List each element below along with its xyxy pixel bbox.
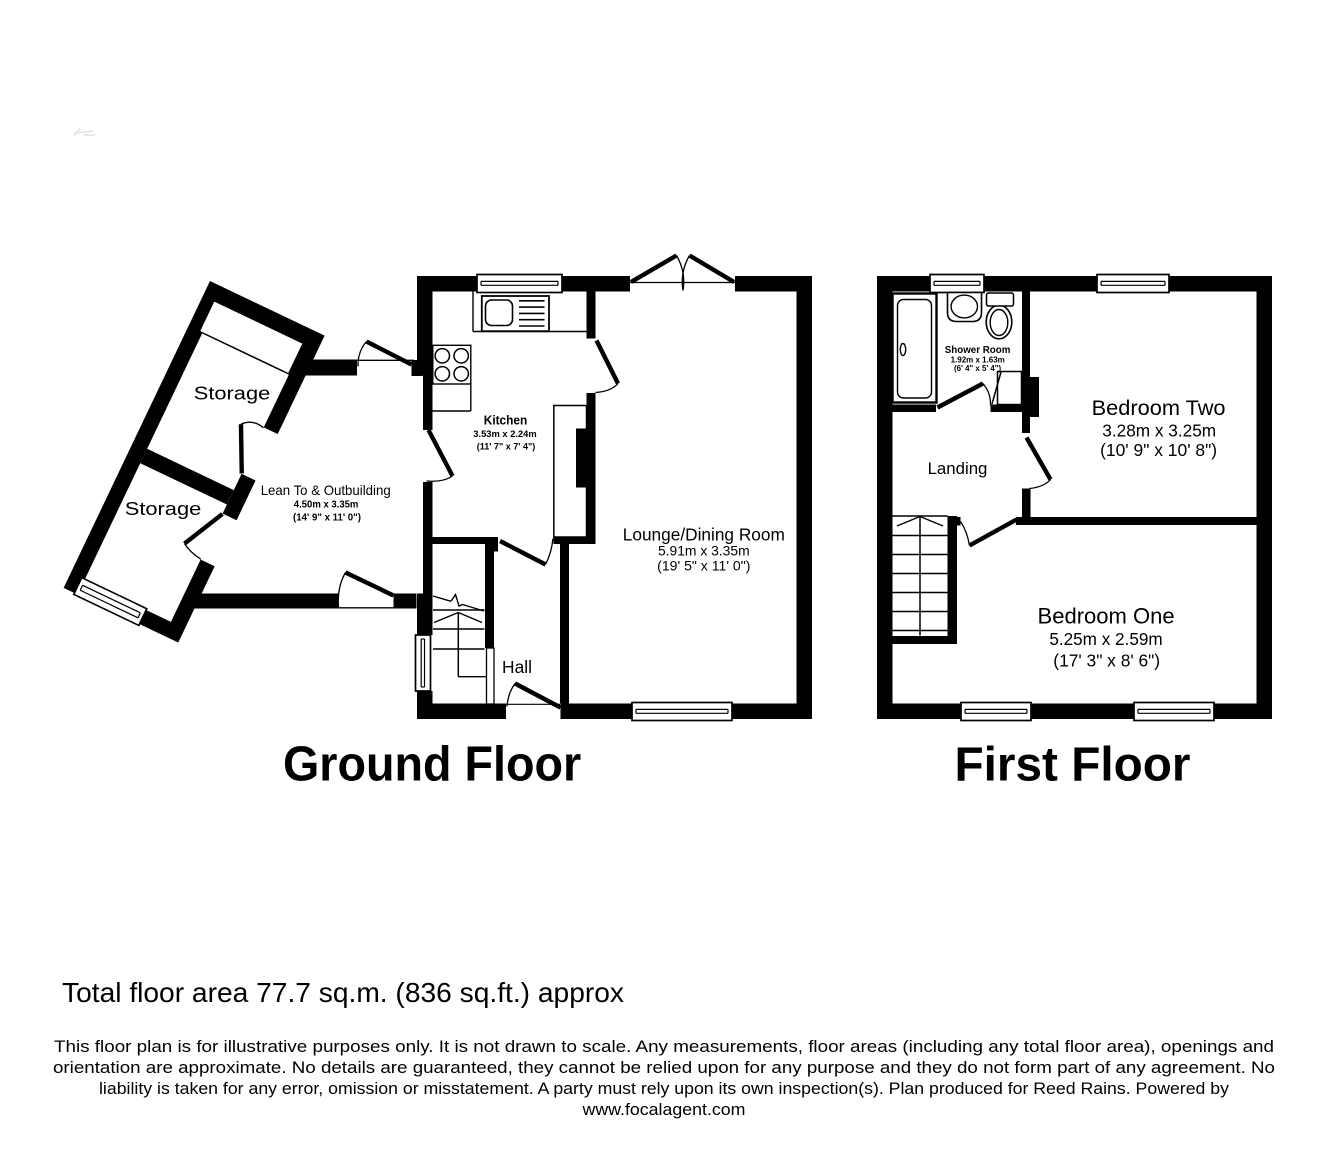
svg-text:3.53m x 2.24m: 3.53m x 2.24m bbox=[473, 428, 536, 439]
svg-text:Landing: Landing bbox=[928, 459, 988, 478]
svg-text:Kitchen: Kitchen bbox=[484, 412, 528, 427]
svg-text:(6' 4" x 5' 4"): (6' 4" x 5' 4") bbox=[954, 364, 1001, 373]
svg-text:www.focalagent.com: www.focalagent.com bbox=[581, 1101, 745, 1119]
svg-text:(14' 9" x 11' 0"): (14' 9" x 11' 0") bbox=[293, 512, 361, 523]
svg-text:Storage: Storage bbox=[194, 383, 271, 404]
svg-text:Bedroom Two: Bedroom Two bbox=[1092, 396, 1226, 420]
svg-text:Lounge/Dining Room: Lounge/Dining Room bbox=[623, 524, 785, 544]
svg-text:Total floor area 77.7 sq.m. (8: Total floor area 77.7 sq.m. (836 sq.ft.)… bbox=[62, 977, 624, 1008]
svg-text:(11' 7" x 7' 4"): (11' 7" x 7' 4") bbox=[477, 442, 536, 453]
svg-text:4.50m x 3.35m: 4.50m x 3.35m bbox=[294, 499, 359, 510]
svg-text:liability is taken for any err: liability is taken for any error, omissi… bbox=[99, 1080, 1230, 1098]
svg-text:3.28m x 3.25m: 3.28m x 3.25m bbox=[1102, 420, 1216, 440]
svg-text:Lean To & Outbuilding: Lean To & Outbuilding bbox=[261, 482, 391, 498]
svg-text:5.25m x 2.59m: 5.25m x 2.59m bbox=[1049, 630, 1162, 649]
svg-text:First Floor: First Floor bbox=[955, 738, 1191, 792]
svg-text:orientation are approximate. N: orientation are approximate. No details … bbox=[53, 1059, 1275, 1077]
svg-text:Shower Room: Shower Room bbox=[945, 345, 1011, 356]
svg-text:(19' 5" x 11' 0"): (19' 5" x 11' 0") bbox=[657, 557, 750, 573]
svg-text:Storage: Storage bbox=[125, 498, 202, 519]
svg-text:5.91m x 3.35m: 5.91m x 3.35m bbox=[658, 542, 750, 558]
svg-text:Hall: Hall bbox=[502, 657, 532, 677]
svg-text:Ground Floor: Ground Floor bbox=[283, 738, 581, 792]
svg-text:This floor plan is for illustr: This floor plan is for illustrative purp… bbox=[54, 1038, 1274, 1056]
svg-text:(17' 3" x 8' 6"): (17' 3" x 8' 6") bbox=[1053, 651, 1160, 671]
svg-text:Bedroom One: Bedroom One bbox=[1038, 604, 1175, 629]
svg-text:(10' 9" x 10' 8"): (10' 9" x 10' 8") bbox=[1100, 440, 1217, 460]
